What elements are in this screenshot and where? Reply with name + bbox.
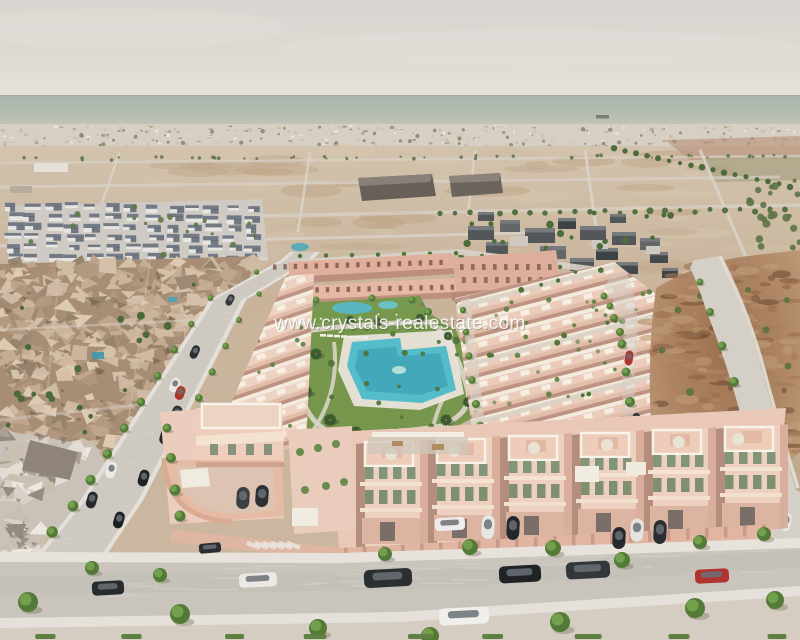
svg-text:www.crystals-realestate.com: www.crystals-realestate.com xyxy=(273,313,526,334)
